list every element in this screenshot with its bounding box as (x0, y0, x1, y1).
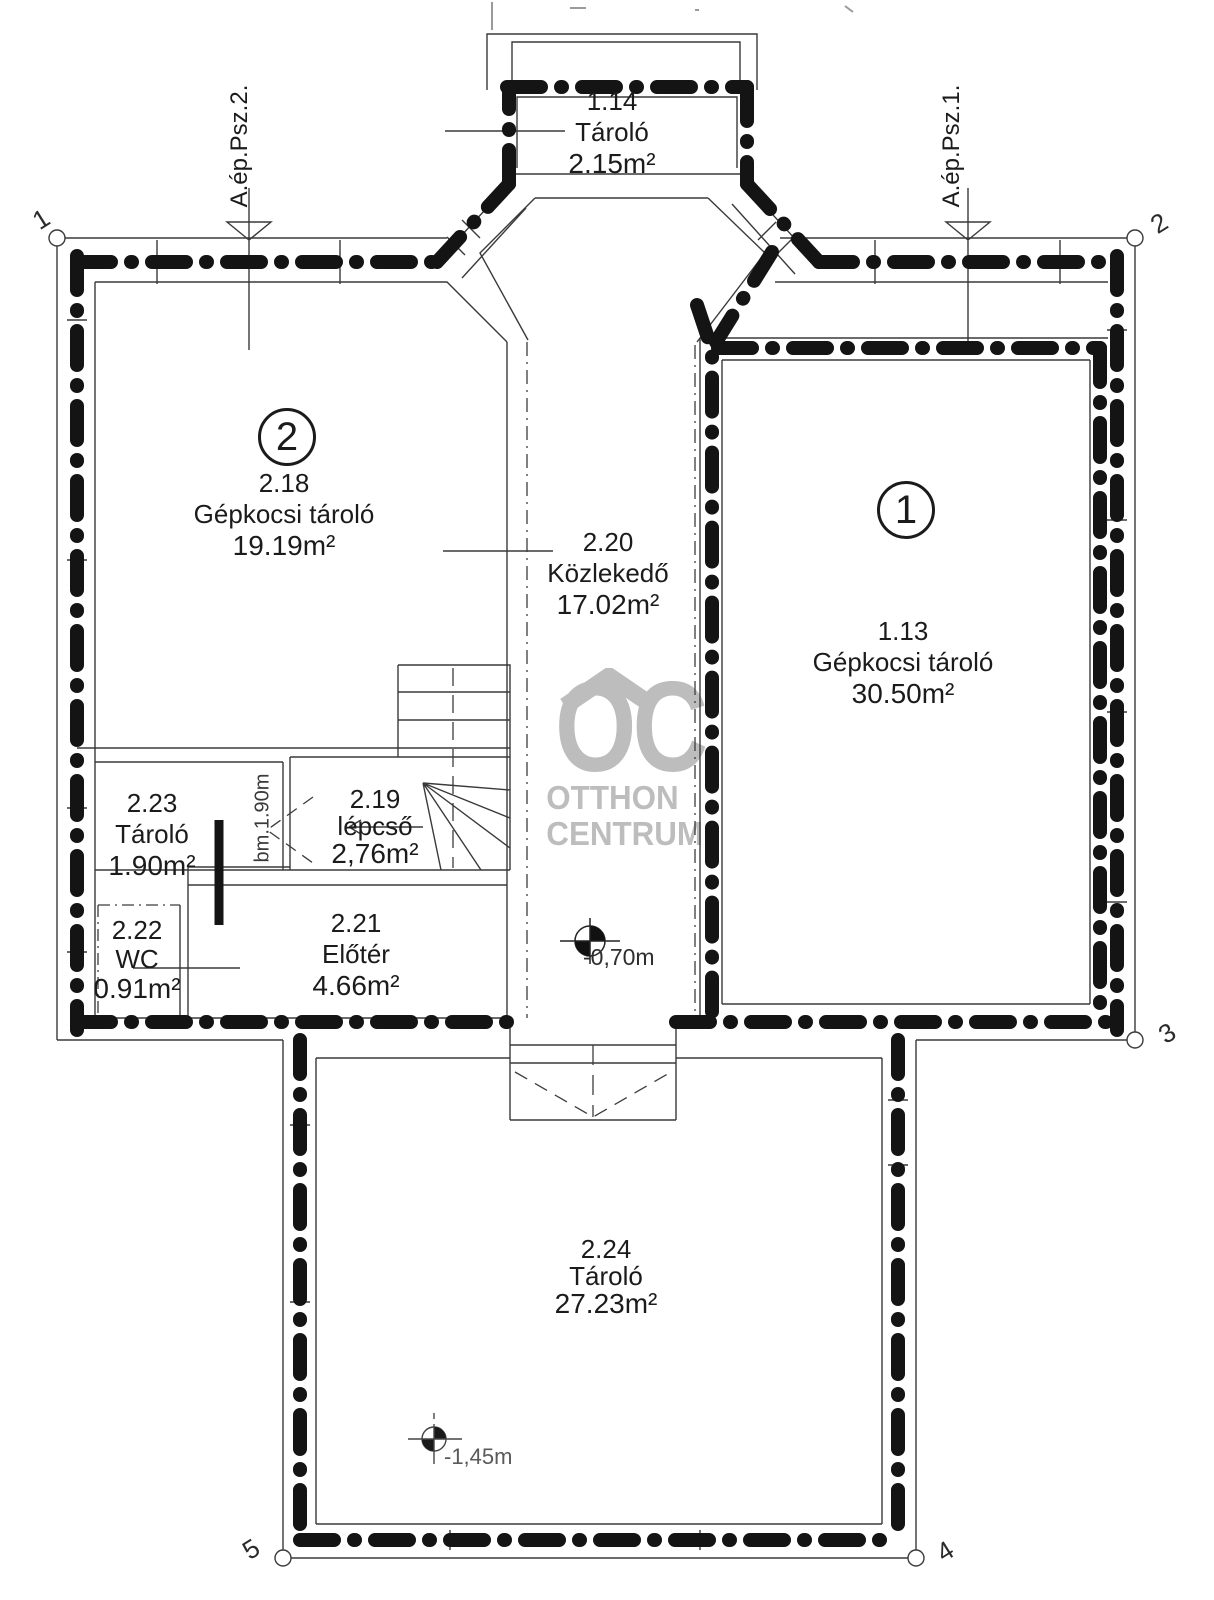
room-name: Tároló (108, 819, 195, 850)
unit-badge-1: 1 (877, 481, 935, 539)
section-marker-left-label: A.ép.Psz.2. (226, 85, 254, 208)
room-label-2-24: 2.24 Tároló 27.23m² (555, 1236, 658, 1317)
room-id: 2.24 (555, 1236, 658, 1263)
room-name: Tároló (568, 117, 655, 148)
elevation-label-lower: -1,45m (444, 1444, 512, 1470)
room-name: Közlekedő (547, 558, 668, 589)
room-label-2-23: 2.23 Tároló 1.90m² (108, 788, 195, 881)
room-area: 4.66m² (312, 970, 399, 1001)
room-label-2-22: 2.22 WC 0.91m² (93, 916, 180, 1003)
stair-headroom-note: bm.1.90m (252, 774, 275, 863)
room-name: Előtér (312, 939, 399, 970)
section-marker-right-label: A.ép.Psz.1. (938, 85, 966, 208)
room-label-1-13: 1.13 Gépkocsi tároló 30.50m² (813, 616, 994, 709)
room-area: 2,76m² (331, 840, 418, 867)
room-id: 2.21 (312, 908, 399, 939)
room-name: WC (93, 945, 180, 974)
room-area: 0.91m² (93, 974, 180, 1003)
room-id: 2.19 (331, 786, 418, 813)
floorplan-page: OC OTTHON CENTRUM (0, 0, 1214, 1600)
room-name: Gépkocsi tároló (813, 647, 994, 678)
room-area: 1.90m² (108, 850, 195, 881)
room-area: 17.02m² (547, 589, 668, 620)
unit-badge-2: 2 (258, 408, 316, 466)
room-label-2-20: 2.20 Közlekedő 17.02m² (547, 527, 668, 620)
room-name: Tároló (555, 1263, 658, 1290)
elevation-label-upper: -0,70m (583, 944, 655, 971)
room-id: 2.23 (108, 788, 195, 819)
room-area: 30.50m² (813, 678, 994, 709)
room-area: 19.19m² (194, 530, 375, 561)
room-id: 1.13 (813, 616, 994, 647)
room-label-2-21: 2.21 Előtér 4.66m² (312, 908, 399, 1001)
room-name: lépcső (331, 813, 418, 840)
room-name: Gépkocsi tároló (194, 499, 375, 530)
room-label-1-14: 1.14 Tároló 2.15m² (568, 86, 655, 179)
room-id: 2.18 (194, 468, 375, 499)
room-area: 2.15m² (568, 148, 655, 179)
room-area: 27.23m² (555, 1290, 658, 1317)
room-id: 2.22 (93, 916, 180, 945)
room-id: 2.20 (547, 527, 668, 558)
room-label-2-19: 2.19 lépcső 2,76m² (331, 786, 418, 867)
room-label-2-18: 2.18 Gépkocsi tároló 19.19m² (194, 468, 375, 561)
room-id: 1.14 (568, 86, 655, 117)
